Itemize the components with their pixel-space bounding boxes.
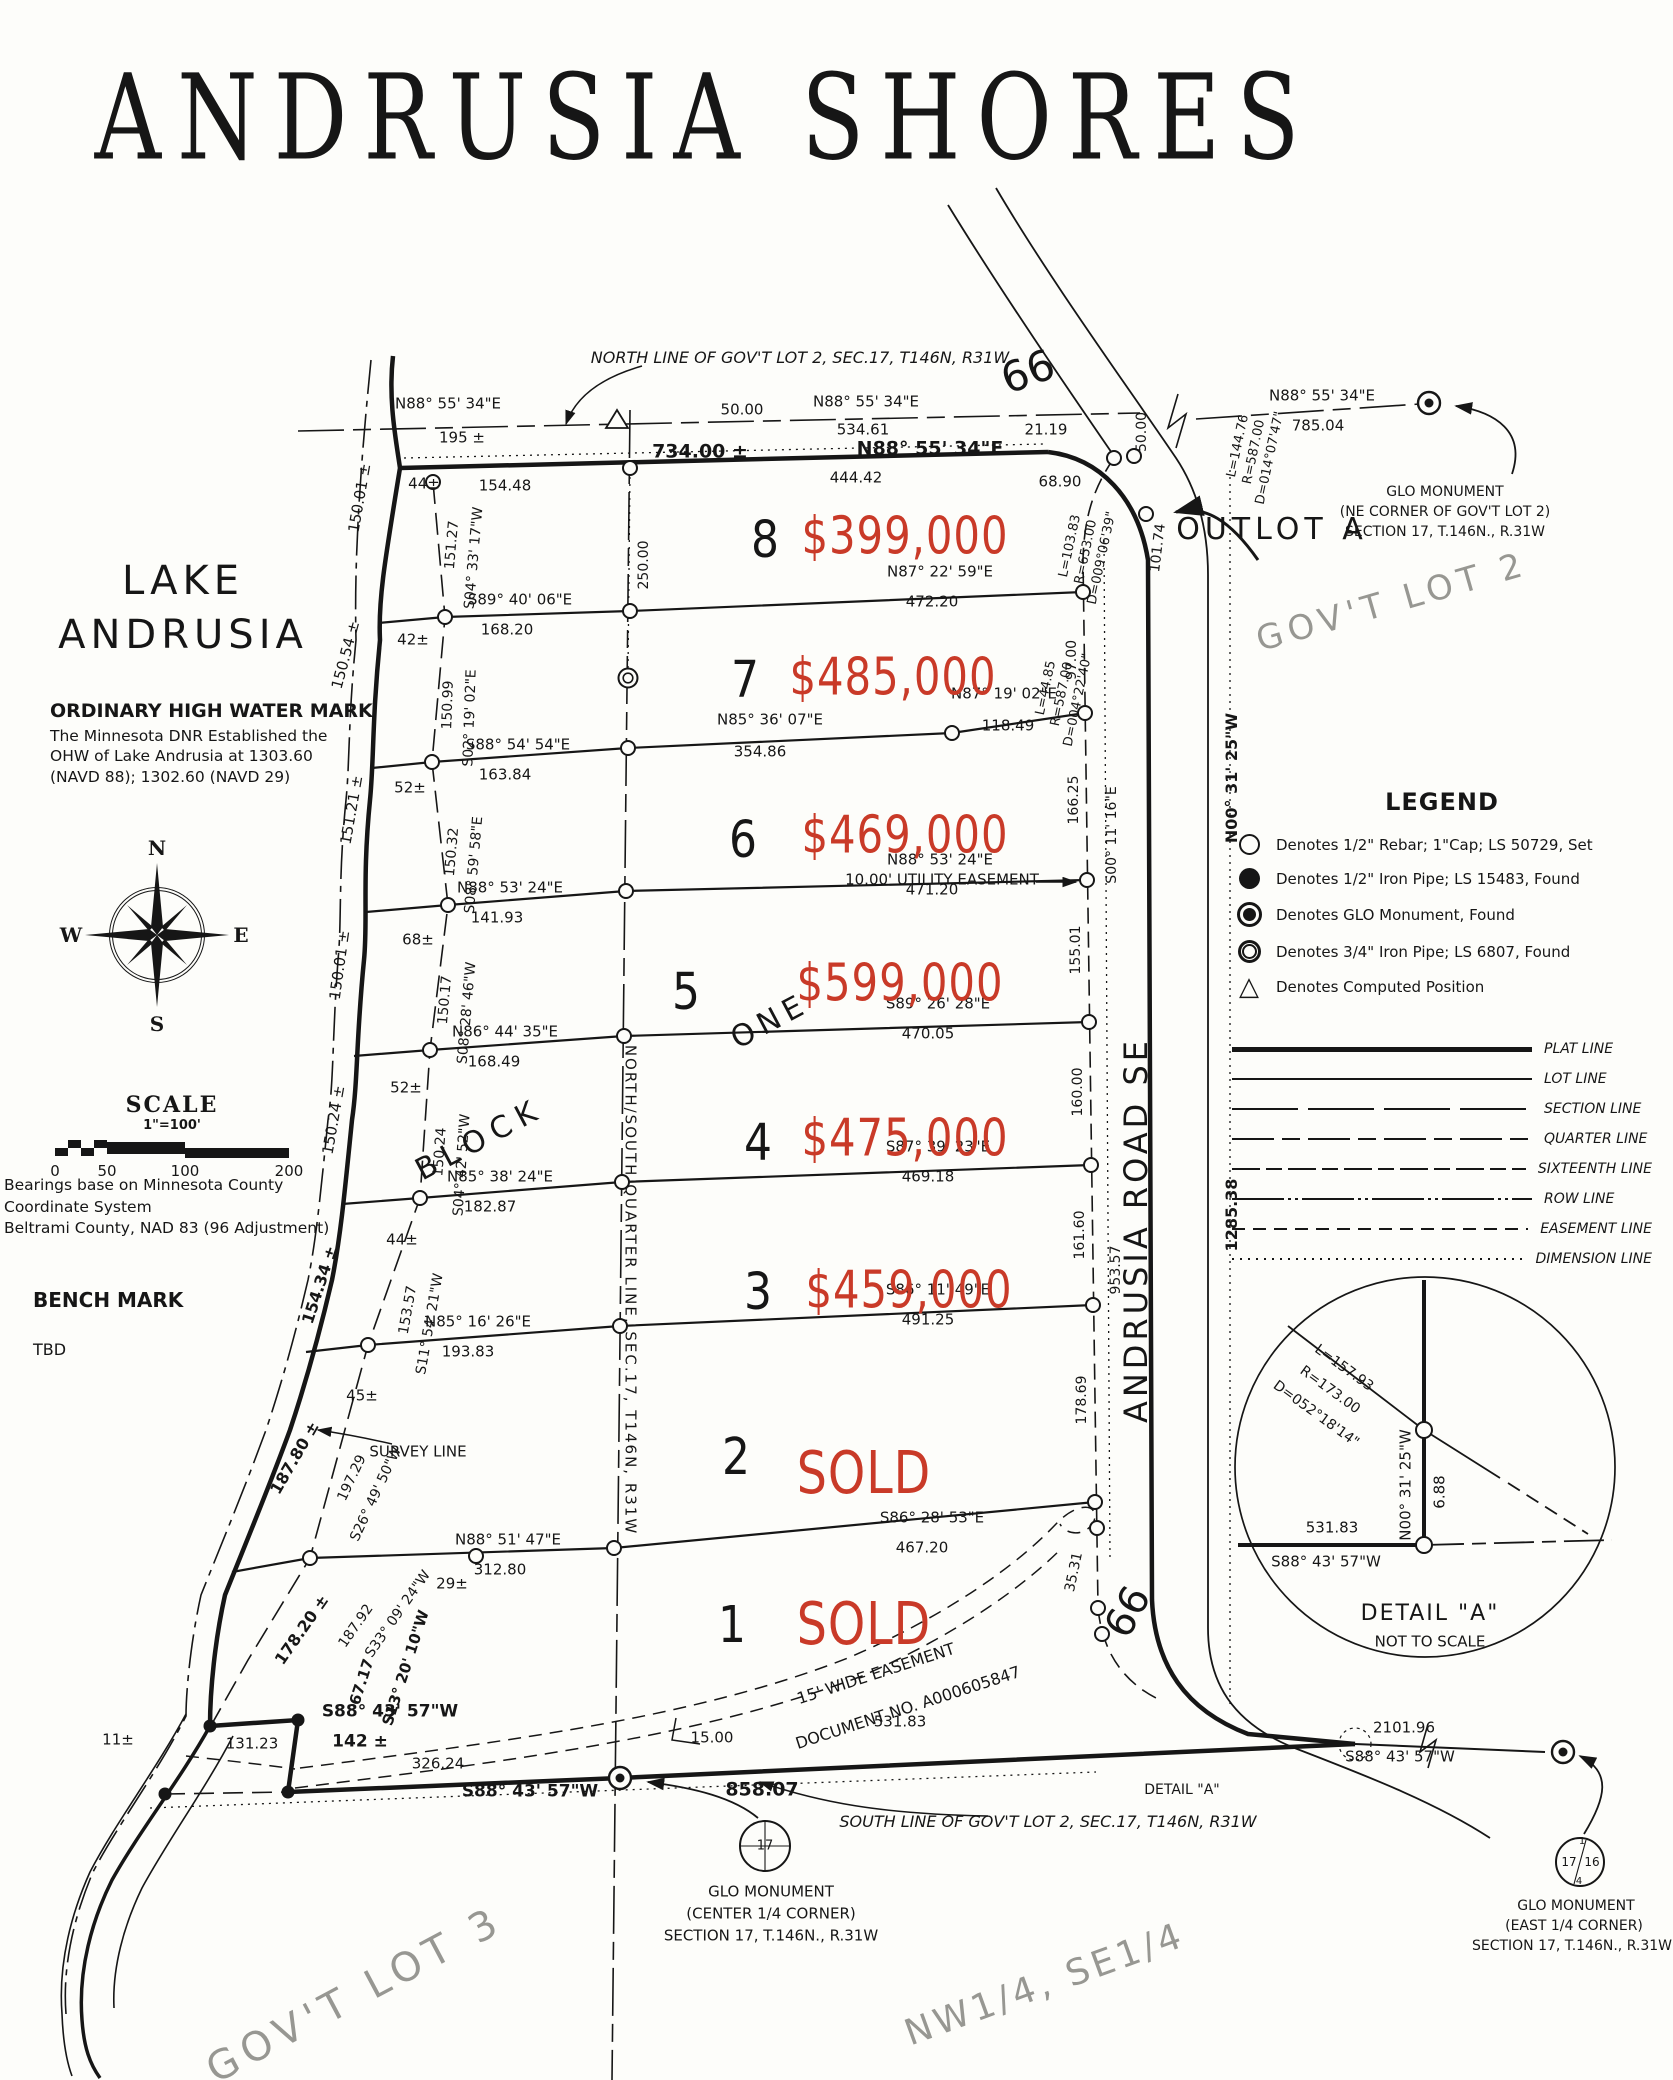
map-label: N87° 22' 59"E <box>887 565 993 580</box>
map-label: 50.00 <box>1135 412 1149 452</box>
map-label: S88° 43' 57"W <box>1271 1555 1381 1570</box>
map-label: 15.00 <box>691 1731 734 1746</box>
map-label: DETAIL "A" <box>1361 1603 1500 1625</box>
map-label: 187.80 ± <box>268 1419 322 1497</box>
map-label: N88° 55' 34"E <box>395 397 501 412</box>
map-label: S86° 28' 53"E <box>880 1511 984 1526</box>
map-label: 531.83 <box>1306 1521 1359 1536</box>
map-label: 168.20 <box>481 623 534 638</box>
map-label: 166.25 <box>1067 776 1081 825</box>
map-label: 11± <box>102 1733 134 1748</box>
lot-number: 2 <box>722 1433 750 1484</box>
map-label: 469.18 <box>902 1170 955 1185</box>
map-label: 193.83 <box>442 1345 495 1360</box>
map-label: 195 ± <box>439 431 485 446</box>
map-label: SECTION 17, T.146N., R.31W <box>1472 1939 1672 1953</box>
lot-number: 5 <box>672 968 700 1019</box>
map-label: 44± <box>386 1233 418 1248</box>
map-label: 44± <box>408 477 440 492</box>
lot-status-sold: SOLD <box>797 1595 931 1654</box>
map-label: 1285.38 <box>1224 1179 1240 1252</box>
map-label: NORTH/SOUTH QUARTER LINE, SEC.17, T146N,… <box>623 1045 638 1535</box>
map-label: N00° 31' 25"W <box>1224 713 1240 843</box>
lot-price: $399,000 <box>801 511 1008 563</box>
map-label: N85° 16' 26"E <box>425 1315 531 1330</box>
map-label: 354.86 <box>734 745 787 760</box>
map-label: 29± <box>436 1577 468 1592</box>
lot-number: 6 <box>729 816 757 867</box>
map-label: 150.17 <box>436 975 454 1025</box>
map-label: 326.24 <box>412 1757 465 1772</box>
map-label: N86° 44' 35"E <box>452 1025 558 1040</box>
map-label: 150.01 ± <box>347 462 374 533</box>
map-label: SOUTH LINE OF GOV'T LOT 2, SEC.17, T146N… <box>839 1814 1256 1830</box>
map-label: 68.90 <box>1039 475 1082 490</box>
map-label: S88° 43' 57"W <box>462 1784 598 1801</box>
map-label: 163.84 <box>479 768 532 783</box>
map-label: 150.01 ± <box>328 929 353 1000</box>
map-label: 182.87 <box>464 1200 517 1215</box>
map-label: NORTH LINE OF GOV'T LOT 2, SEC.17, T146N… <box>591 350 1009 366</box>
map-label: S88° 54' 54"E <box>466 738 570 753</box>
lot-price: $599,000 <box>796 958 1003 1010</box>
lot-number: 8 <box>751 516 779 567</box>
map-label: 178.69 <box>1075 1376 1089 1425</box>
map-label: 2101.96 <box>1373 1721 1435 1736</box>
lot-status-sold: SOLD <box>797 1444 931 1503</box>
map-label: 470.05 <box>902 1027 955 1042</box>
lot-price: $469,000 <box>801 810 1008 862</box>
map-label: 17 <box>757 1840 774 1853</box>
map-label: 154.48 <box>479 479 532 494</box>
map-label: 150.54 ± <box>330 619 363 690</box>
map-label: N88° 51' 47"E <box>455 1533 561 1548</box>
map-label: DETAIL "A" <box>1144 1783 1220 1797</box>
map-label: 66 <box>1098 1580 1157 1644</box>
map-label: NW1/4, SE1/4 <box>900 1918 1189 2053</box>
map-label: 197.29 <box>335 1453 368 1503</box>
map-label: 444.42 <box>830 471 883 486</box>
map-label: 150.32 <box>443 827 461 877</box>
lot-number: 3 <box>744 1268 772 1319</box>
map-label: 151.21 ± <box>339 774 366 845</box>
map-label: 785.04 <box>1292 419 1345 434</box>
map-label: 178.20 ± <box>272 1592 331 1667</box>
map-label: GOV'T LOT 3 <box>200 1900 509 2080</box>
map-label: 467.20 <box>896 1541 949 1556</box>
map-label: N85° 38' 24"E <box>447 1170 553 1185</box>
map-label: 141.93 <box>471 911 524 926</box>
map-label: 168.49 <box>468 1055 521 1070</box>
map-label: OUTLOT A <box>1176 515 1368 545</box>
map-label: GLO MONUMENT <box>1386 485 1503 499</box>
map-label: N85° 36' 07"E <box>717 713 823 728</box>
lot-price: $475,000 <box>801 1113 1008 1165</box>
map-label: 471.20 <box>906 883 959 898</box>
map-label: 155.01 <box>1069 926 1083 975</box>
map-label: 472.20 <box>906 595 959 610</box>
map-label: 734.00 ± <box>652 443 748 462</box>
map-label: 50.00 <box>721 403 764 418</box>
map-label: 101.74 <box>1148 523 1168 573</box>
map-label: 97.00 <box>1065 640 1079 680</box>
map-label: 858.07 <box>725 1781 798 1800</box>
map-label: S08° 59' 58"E <box>463 816 485 914</box>
lot-number: 1 <box>718 1601 746 1652</box>
map-label: 21.19 <box>1025 423 1068 438</box>
map-label: (CENTER 1/4 CORNER) <box>686 1907 855 1922</box>
map-label: N88° 55' 34"E <box>813 395 919 410</box>
map-label: NOT TO SCALE <box>1375 1635 1486 1650</box>
map-label: 6.88 <box>1433 1475 1448 1508</box>
map-label: 45± <box>346 1389 378 1404</box>
map-label: N00° 31' 25"W <box>1399 1429 1414 1540</box>
map-label: (EAST 1/4 CORNER) <box>1505 1919 1643 1933</box>
map-label: 52± <box>394 781 426 796</box>
map-label: S00° 11' 16"E <box>1105 786 1119 883</box>
map-label: S88° 43' 57"W <box>1345 1750 1455 1765</box>
lot-number: 4 <box>744 1119 772 1170</box>
map-label: 312.80 <box>474 1563 527 1578</box>
map-label: 151.27 <box>443 520 461 570</box>
map-label: 16 <box>1584 1856 1599 1868</box>
map-label: 250.00 <box>637 541 651 590</box>
map-label-layer: NORTH LINE OF GOV'T LOT 2, SEC.17, T146N… <box>0 0 1673 2080</box>
map-label: GLO MONUMENT <box>1517 1899 1634 1913</box>
map-label: SECTION 17, T.146N., R.31W <box>1345 525 1545 539</box>
lot-price: $485,000 <box>789 652 996 704</box>
map-label: 154.34 ± <box>300 1244 340 1326</box>
map-label: (NE CORNER OF GOV'T LOT 2) <box>1340 505 1551 519</box>
map-label: 153.57 <box>397 1285 419 1336</box>
map-label: 534.61 <box>837 423 890 438</box>
map-label: N88° 55' 34"E <box>857 440 1004 459</box>
map-label: S08° 28' 46"W <box>456 961 479 1064</box>
plat-map-page: N S E W 0 50 100 200 ANDRUSIA SHORES LAK… <box>0 0 1673 2080</box>
lot-price: $459,000 <box>805 1265 1012 1317</box>
map-label: 42± <box>397 633 429 648</box>
map-label: 17 <box>1561 1856 1576 1868</box>
map-label: GOV'T LOT 2 <box>1253 547 1532 657</box>
map-label: 131.23 <box>226 1737 279 1752</box>
map-label: DOCUMENT NO. A000605847 <box>794 1664 1023 1752</box>
map-label: 1 <box>1579 1837 1585 1847</box>
map-label: 68± <box>402 933 434 948</box>
map-label: S89° 40' 06"E <box>468 593 572 608</box>
lot-number: 7 <box>731 656 759 707</box>
map-label: 118.49 <box>982 719 1035 734</box>
map-label: SECTION 17, T.146N., R.31W <box>664 1929 878 1944</box>
map-label: 161.60 <box>1073 1211 1087 1260</box>
map-label: 142 ± <box>332 1734 388 1751</box>
map-label: GLO MONUMENT <box>708 1885 834 1900</box>
map-label: 67.17 <box>348 1657 377 1707</box>
map-label: 160.00 <box>1071 1068 1085 1117</box>
map-label: ANDRUSIA ROAD SE <box>1120 1037 1152 1423</box>
map-label: 150.24 ± <box>321 1084 348 1155</box>
map-label: 52± <box>390 1081 422 1096</box>
map-label: N88° 55' 34"E <box>1269 389 1375 404</box>
map-label: N88° 53' 24"E <box>457 881 563 896</box>
map-label: 4 <box>1576 1877 1582 1887</box>
map-label: 150.99 <box>440 680 456 729</box>
map-label: 35.31 <box>1063 1551 1085 1593</box>
